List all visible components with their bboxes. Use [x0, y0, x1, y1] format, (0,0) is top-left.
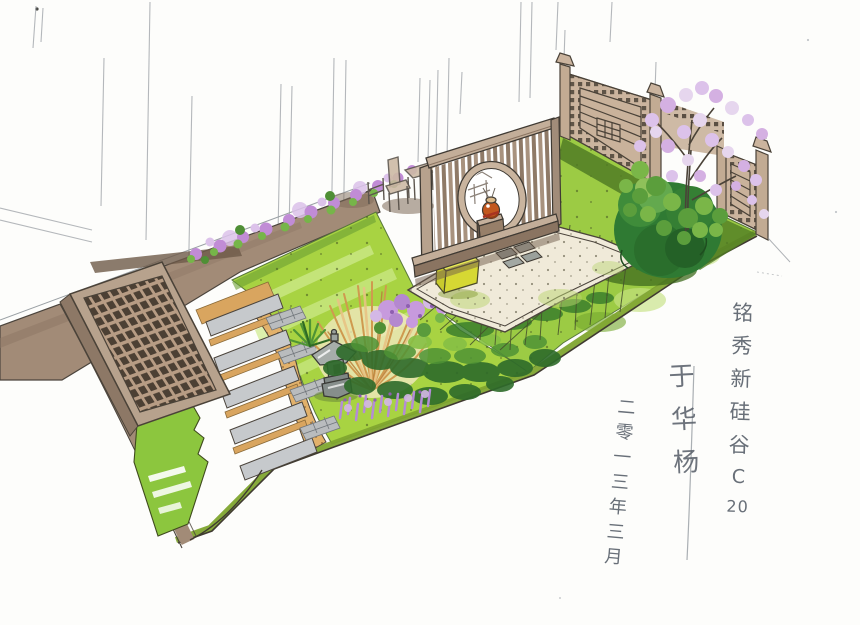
inscription-char: 秀	[731, 336, 753, 358]
inscription-char: 一	[612, 448, 632, 468]
inscription-char: 年	[608, 498, 628, 518]
inscription-char: 华	[670, 406, 697, 433]
fence-corner-post	[756, 150, 768, 240]
inscription-char: C	[731, 468, 745, 487]
inscription-char: 谷	[728, 435, 750, 457]
landscape-sketch-canvas: 铭 秀 新 硅 谷 C 20 于 华 杨 二 零 一 三 年 三 月	[0, 0, 860, 625]
inscription-char: 铭	[732, 303, 754, 325]
inscription-char: 新	[730, 369, 752, 391]
inscription-char: 三	[606, 523, 626, 543]
inscription-char: 20	[726, 499, 749, 516]
inscription-char: 杨	[673, 449, 700, 476]
inscription-char: 硅	[729, 402, 751, 424]
inscription-char: 于	[668, 363, 695, 390]
inscription-char: 月	[604, 548, 624, 568]
inscription-char: 三	[610, 473, 630, 493]
inscription-char: 二	[617, 399, 637, 419]
inscription-char: 零	[615, 423, 635, 443]
